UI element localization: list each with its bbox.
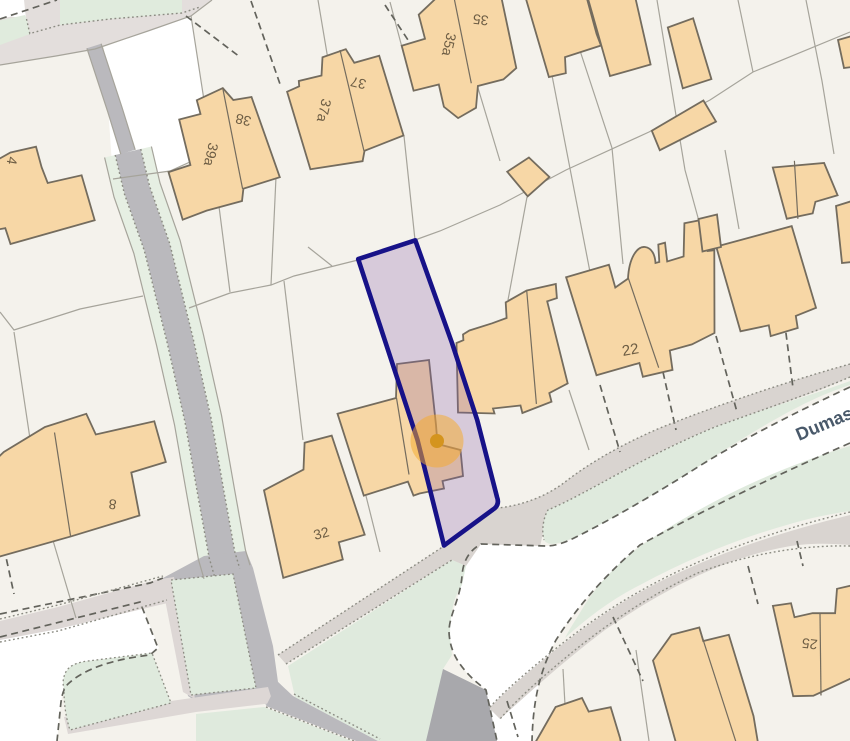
svg-text:25: 25	[801, 635, 819, 653]
svg-text:35: 35	[472, 11, 490, 29]
svg-text:22: 22	[621, 340, 640, 360]
